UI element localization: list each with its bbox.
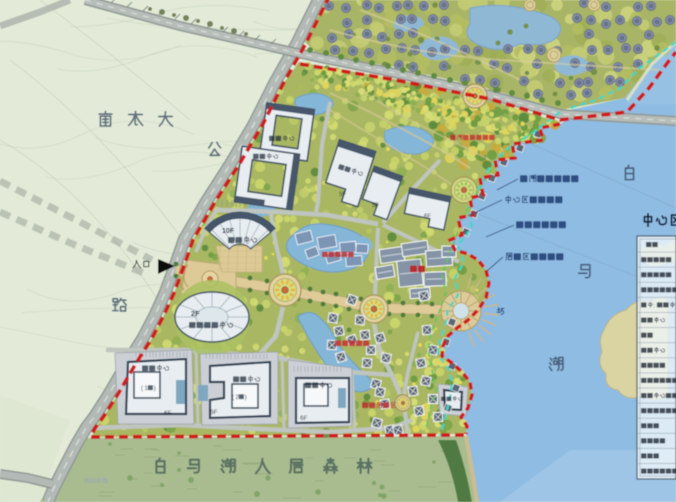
svg-text:): ) bbox=[154, 386, 156, 392]
svg-text:6F: 6F bbox=[300, 415, 308, 422]
svg-text:5F: 5F bbox=[372, 203, 379, 209]
svg-text:5F: 5F bbox=[339, 192, 346, 198]
svg-text:(: ( bbox=[141, 386, 143, 392]
svg-text::: : bbox=[653, 302, 655, 309]
svg-text:(: ( bbox=[232, 395, 234, 401]
svg-text:6F: 6F bbox=[164, 410, 172, 417]
svg-text:10F: 10F bbox=[222, 228, 235, 235]
svg-text:2F: 2F bbox=[191, 309, 200, 318]
svg-text:6F: 6F bbox=[210, 409, 218, 416]
svg-text:6F: 6F bbox=[424, 214, 431, 220]
svg-text:): ) bbox=[245, 395, 247, 401]
